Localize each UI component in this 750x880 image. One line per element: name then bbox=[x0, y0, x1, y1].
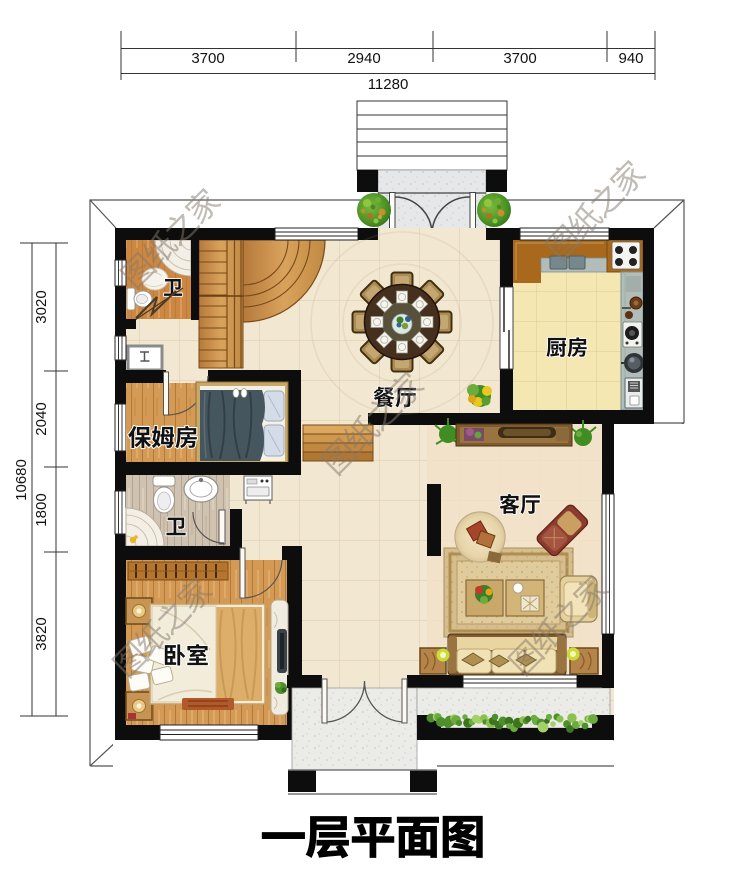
svg-text:11280: 11280 bbox=[368, 76, 409, 93]
svg-text:3700: 3700 bbox=[191, 50, 224, 67]
svg-text:3020: 3020 bbox=[33, 290, 50, 323]
svg-text:2040: 2040 bbox=[33, 402, 50, 435]
svg-text:1800: 1800 bbox=[33, 493, 50, 526]
svg-text:3700: 3700 bbox=[503, 50, 536, 67]
svg-text:10680: 10680 bbox=[13, 459, 30, 501]
svg-text:940: 940 bbox=[618, 50, 643, 67]
svg-text:2940: 2940 bbox=[347, 50, 380, 67]
svg-text:3820: 3820 bbox=[33, 617, 50, 650]
